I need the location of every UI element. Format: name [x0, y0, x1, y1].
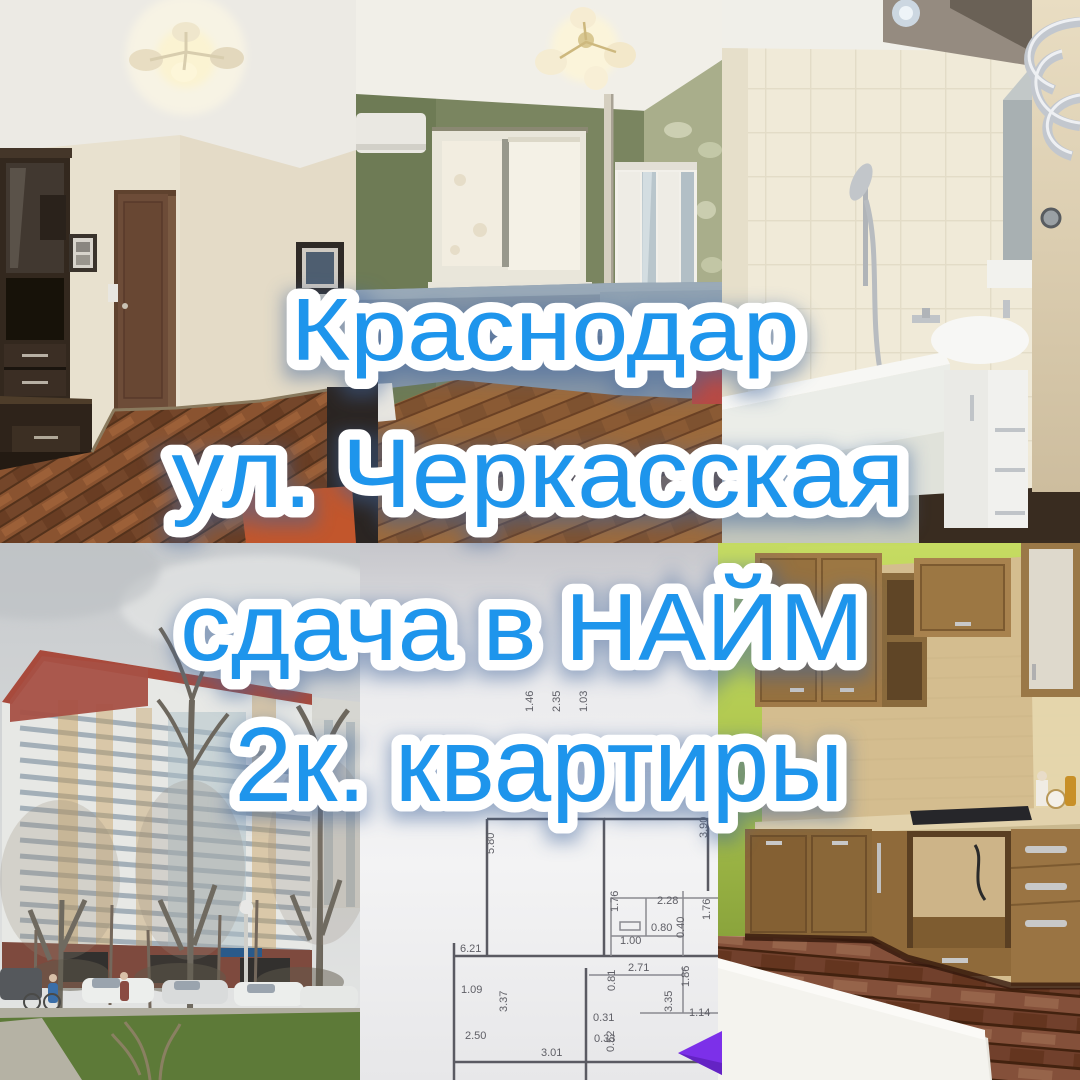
svg-text:0.81: 0.81 — [606, 970, 618, 991]
svg-text:2.50: 2.50 — [465, 1030, 486, 1042]
svg-text:3.37: 3.37 — [498, 991, 510, 1012]
svg-text:2к. квартиры: 2к. квартиры — [235, 706, 844, 824]
svg-text:1.09: 1.09 — [461, 984, 482, 996]
svg-text:1.00: 1.00 — [620, 935, 641, 947]
svg-text:1.14: 1.14 — [689, 1007, 710, 1019]
svg-text:5.80: 5.80 — [485, 833, 497, 854]
svg-text:6.21: 6.21 — [460, 943, 481, 955]
svg-text:1.76: 1.76 — [609, 891, 621, 912]
svg-text:3.35: 3.35 — [663, 991, 675, 1012]
svg-text:сдача в НАЙМ: сдача в НАЙМ — [180, 573, 864, 681]
svg-text:2.28: 2.28 — [657, 895, 678, 907]
svg-text:0.52: 0.52 — [605, 1031, 617, 1052]
svg-text:0.31: 0.31 — [593, 1012, 614, 1024]
svg-text:2.71: 2.71 — [628, 962, 649, 974]
svg-text:1.86: 1.86 — [680, 966, 692, 987]
svg-text:ул. Черкасская: ул. Черкасская — [172, 419, 905, 528]
svg-text:3.01: 3.01 — [541, 1047, 562, 1059]
svg-text:0.40: 0.40 — [675, 917, 687, 938]
svg-text:0.80: 0.80 — [651, 922, 672, 934]
svg-text:1.76: 1.76 — [701, 899, 713, 920]
svg-text:Краснодар: Краснодар — [291, 280, 800, 379]
